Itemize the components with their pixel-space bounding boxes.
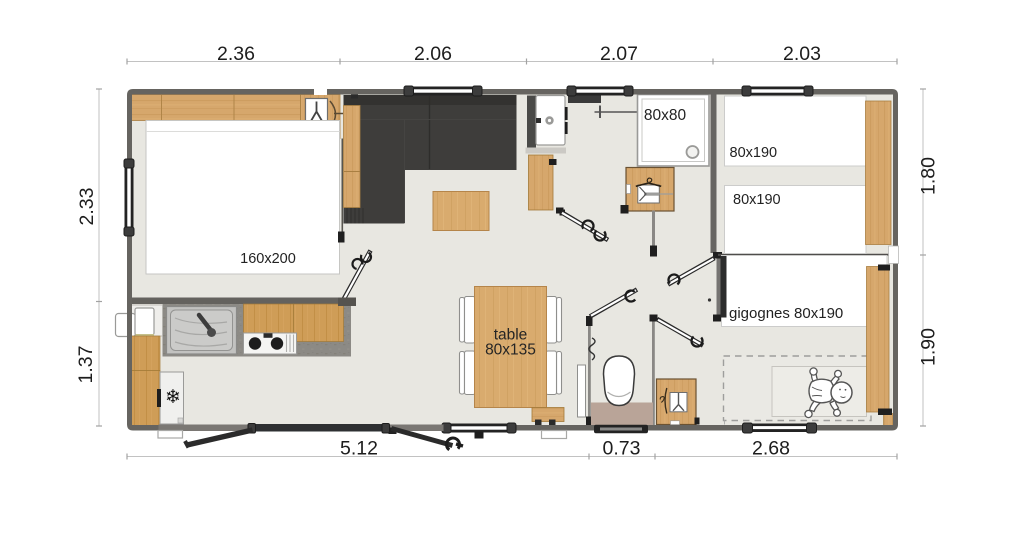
svg-text:80x190: 80x190 — [733, 192, 781, 208]
svg-text:❄: ❄ — [165, 387, 181, 408]
svg-text:5.12: 5.12 — [340, 438, 378, 460]
svg-text:2.33: 2.33 — [76, 188, 98, 226]
svg-text:2.06: 2.06 — [414, 43, 452, 65]
svg-text:1.90: 1.90 — [918, 328, 940, 366]
svg-text:2.07: 2.07 — [600, 43, 638, 65]
svg-text:2.03: 2.03 — [783, 43, 821, 65]
svg-text:80x135: 80x135 — [485, 342, 536, 359]
svg-text:gigognes 80x190: gigognes 80x190 — [729, 305, 843, 322]
svg-text:80x190: 80x190 — [730, 145, 778, 161]
svg-text:1.80: 1.80 — [918, 157, 940, 195]
svg-text:1.37: 1.37 — [75, 346, 97, 384]
svg-text:160x200: 160x200 — [240, 251, 296, 267]
svg-text:2.68: 2.68 — [752, 438, 790, 460]
svg-text:80x80: 80x80 — [644, 107, 687, 124]
svg-text:0.73: 0.73 — [603, 438, 641, 460]
svg-text:2.36: 2.36 — [217, 43, 255, 65]
